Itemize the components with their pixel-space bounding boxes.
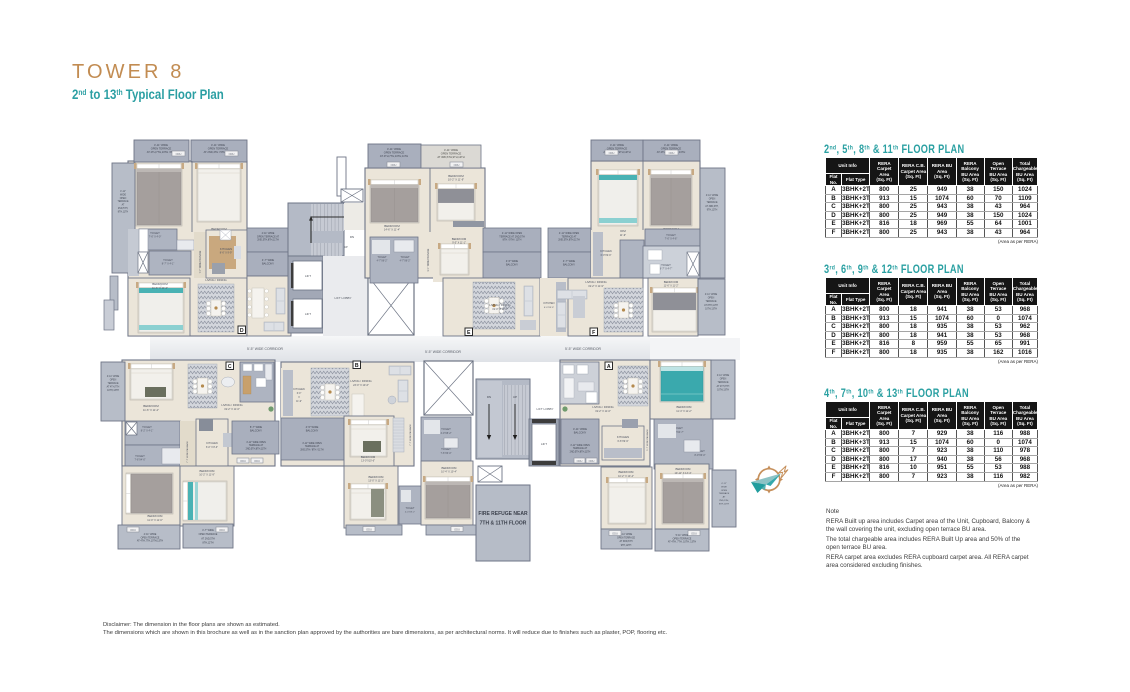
svg-text:AT 3RD,6TH: AT 3RD,6TH [620, 540, 633, 543]
svg-text:9TH,12TH: 9TH,12TH [621, 545, 632, 547]
svg-text:TOILET: TOILET [150, 231, 160, 235]
svg-text:ODU: ODU [176, 152, 182, 156]
svg-text:TERRACE: TERRACE [118, 200, 129, 203]
svg-text:TOILET: TOILET [661, 263, 671, 267]
svg-text:ODU: ODU [589, 459, 595, 463]
svg-text:KITCHEN: KITCHEN [544, 302, 555, 305]
svg-text:8TH,12TH: 8TH,12TH [202, 542, 213, 545]
svg-text:ODU: ODU [254, 459, 260, 463]
svg-text:TERRACE: TERRACE [706, 300, 717, 303]
svg-text:KITCHEN: KITCHEN [600, 249, 612, 253]
svg-text:10TH,13TH: 10TH,13TH [107, 390, 119, 392]
svg-text:14'-6" X 11'-4": 14'-6" X 11'-4" [384, 228, 400, 232]
svg-text:ODU: ODU [577, 459, 583, 463]
svg-text:4'-0"X8'-2": 4'-0"X8'-2" [405, 512, 415, 514]
svg-text:AT 3RD,6TH,9TH,12TH: AT 3RD,6TH,9TH,12TH [437, 155, 464, 159]
svg-text:F: F [592, 330, 595, 336]
svg-text:4'-11" WIDE OPEN: 4'-11" WIDE OPEN [302, 443, 322, 445]
svg-text:13'-0" X 11'-2": 13'-0" X 11'-2" [368, 480, 384, 483]
svg-text:4'-11" WIDE OPEN: 4'-11" WIDE OPEN [246, 442, 266, 444]
svg-text:4'-0"X8'-2": 4'-0"X8'-2" [440, 432, 451, 435]
svg-text:OPEN: OPEN [120, 198, 127, 200]
svg-text:10'-4" X 10'-4": 10'-4" X 10'-4" [441, 471, 457, 474]
svg-text:8'-7" X 4'-7": 8'-7" X 4'-7" [660, 268, 673, 271]
svg-text:2ND,5TH,: 2ND,5TH, [719, 500, 729, 502]
svg-text:ODU: ODU [669, 151, 675, 155]
svg-text:BEDROOM: BEDROOM [369, 475, 385, 479]
svg-text:TERRACE: TERRACE [108, 382, 119, 385]
svg-text:TERRACE AT: TERRACE AT [573, 447, 588, 450]
svg-text:ODU: ODU [219, 528, 225, 532]
svg-text:8TH,11TH: 8TH,11TH [719, 503, 729, 505]
svg-text:BALCONY: BALCONY [574, 431, 587, 435]
svg-text:11'-9": 11'-9" [296, 401, 302, 403]
svg-text:LIVING / DINING: LIVING / DINING [592, 405, 613, 409]
svg-text:BALCONY: BALCONY [506, 263, 518, 266]
svg-text:5'-5" WIDE CORRIDOR: 5'-5" WIDE CORRIDOR [247, 347, 283, 351]
svg-text:C: C [228, 364, 232, 370]
svg-text:10'-2" X 10'-4": 10'-2" X 10'-4" [618, 475, 634, 478]
svg-text:4'-7"X8'-2": 4'-7"X8'-2" [377, 261, 388, 263]
svg-text:4'-5" WIDE: 4'-5" WIDE [306, 425, 319, 429]
svg-text:BEDROOM: BEDROOM [448, 174, 464, 178]
svg-text:AT 4TH,7TH: AT 4TH,7TH [717, 385, 730, 388]
svg-text:UP: UP [344, 246, 348, 249]
svg-text:4'-11" WIDE: 4'-11" WIDE [444, 148, 458, 152]
svg-text:11'-6" X 11'-2": 11'-6" X 11'-2" [143, 408, 159, 412]
svg-text:BEDROOM: BEDROOM [384, 224, 400, 228]
svg-text:LIVING / DINING: LIVING / DINING [350, 379, 371, 383]
svg-text:TERRACE AT: TERRACE AT [249, 444, 264, 447]
svg-text:FIRE REFUGE NEAR: FIRE REFUGE NEAR [478, 511, 528, 517]
svg-text:TERRACE: TERRACE [718, 381, 729, 384]
svg-text:11'-4" X 11'-2": 11'-4" X 11'-2" [676, 410, 692, 413]
svg-text:AT 3RD,6TH,: AT 3RD,6TH, [705, 205, 719, 208]
svg-text:BALCONY: BALCONY [306, 429, 319, 433]
svg-text:ODU: ODU [130, 528, 136, 532]
svg-text:8TH,11TH: 8TH,11TH [118, 211, 129, 213]
svg-text:AT 4TH,7TH,10TH / 8TH: AT 4TH,7TH,10TH / 8TH [147, 150, 176, 154]
svg-text:7'-6"X6'-0": 7'-6"X6'-0" [440, 452, 451, 455]
svg-text:LIFT LOBBY: LIFT LOBBY [537, 407, 554, 411]
svg-text:BEDROOM: BEDROOM [143, 404, 159, 408]
svg-text:OPEN TERRACE: OPEN TERRACE [208, 147, 229, 151]
svg-text:2ND,5TH,8TH,11TH: 2ND,5TH,8TH,11TH [246, 448, 267, 450]
svg-text:2ND,5TH,: 2ND,5TH, [118, 208, 129, 210]
svg-text:BEDROOM: BEDROOM [676, 467, 692, 471]
svg-text:4'-11" WIDE: 4'-11" WIDE [107, 376, 120, 378]
svg-text:13'-0"X10'-6": 13'-0"X10'-6" [361, 460, 375, 463]
svg-text:OPEN TERRACE: OPEN TERRACE [617, 537, 636, 540]
svg-text:ODU: ODU [454, 527, 460, 531]
svg-text:2ND,5TH,8TH,11TH: 2ND,5TH,8TH,11TH [558, 239, 580, 242]
svg-text:5'-5" WIDE CORRIDOR: 5'-5" WIDE CORRIDOR [425, 350, 461, 354]
svg-text:4'-11" WIDE: 4'-11" WIDE [664, 143, 678, 147]
svg-text:LIVING / DINING: LIVING / DINING [205, 278, 226, 282]
svg-text:4'-11" WIDE: 4'-11" WIDE [620, 534, 633, 536]
svg-text:UP: UP [513, 395, 517, 399]
svg-text:10'-2" X 11'-9": 10'-2" X 11'-9" [199, 474, 215, 477]
svg-text:LIVING / DINING: LIVING / DINING [489, 303, 510, 307]
svg-text:D: D [240, 328, 244, 334]
svg-text:KITCHEN: KITCHEN [617, 435, 629, 439]
svg-text:AT 8TH,11TH: AT 8TH,11TH [704, 304, 718, 307]
svg-text:BEDROOM: BEDROOM [442, 466, 458, 470]
svg-text:19'-2" X 11'-6": 19'-2" X 11'-6" [224, 408, 240, 411]
svg-text:4'-11" WIDE: 4'-11" WIDE [211, 143, 225, 147]
svg-text:19'-2" X 11'-6": 19'-2" X 11'-6" [595, 410, 611, 413]
svg-text:TERRACE: TERRACE [707, 201, 718, 204]
svg-text:OPEN: OPEN [720, 379, 727, 381]
svg-text:2ND,5TH / 8TH / 11TH: 2ND,5TH / 8TH / 11TH [300, 449, 324, 451]
svg-text:8TH / 9TH / 11TH: 8TH / 9TH / 11TH [503, 239, 522, 242]
svg-text:LIFT LOBBY: LIFT LOBBY [335, 296, 352, 300]
svg-text:7TH & 11TH FLOOR: 7TH & 11TH FLOOR [480, 521, 527, 527]
svg-text:9TH,12TH: 9TH,12TH [707, 209, 718, 211]
svg-text:E: E [467, 330, 471, 336]
svg-text:LIFT: LIFT [305, 274, 311, 278]
svg-text:OPEN: OPEN [110, 380, 117, 382]
svg-text:8'-6" X 9'-9": 8'-6" X 9'-9" [220, 252, 233, 255]
svg-text:ODU: ODU [366, 527, 372, 531]
svg-text:AT 4TH, 7TH, 10TH, 13TH: AT 4TH, 7TH, 10TH, 13TH [668, 541, 696, 544]
svg-text:TOILET: TOILET [666, 233, 676, 237]
svg-text:WIDE: WIDE [721, 486, 727, 488]
svg-text:4'-11" WIDE: 4'-11" WIDE [154, 143, 168, 147]
svg-text:4'-11" WIDE: 4'-11" WIDE [706, 195, 719, 197]
svg-text:OPEN TERRACE: OPEN TERRACE [384, 151, 405, 155]
svg-text:AT 4TH,7TH: AT 4TH,7TH [107, 386, 120, 389]
svg-text:OPEN: OPEN [708, 298, 715, 300]
svg-text:ODU: ODU [691, 531, 697, 535]
svg-text:ODU: ODU [612, 531, 618, 535]
svg-text:BALCONY: BALCONY [250, 429, 262, 432]
svg-text:ODU: ODU [454, 163, 460, 167]
svg-text:OPEN: OPEN [709, 199, 716, 201]
svg-text:BEDROOM: BEDROOM [619, 470, 635, 474]
svg-text:BEDROOM: BEDROOM [452, 237, 467, 241]
svg-text:8'-0"X6'-0": 8'-0"X6'-0" [694, 454, 705, 457]
svg-text:9'-5" X 11'-1": 9'-5" X 11'-1" [452, 241, 466, 244]
svg-text:BEDROOM: BEDROOM [664, 280, 679, 284]
svg-text:19'-2" X 11'-9": 19'-2" X 11'-9" [588, 285, 604, 288]
svg-text:AT 4TH,7TH,10TH,13TH: AT 4TH,7TH,10TH,13TH [137, 540, 163, 543]
svg-text:4'-11" WIDE: 4'-11" WIDE [705, 294, 718, 296]
svg-text:ODU: ODU [391, 163, 397, 167]
svg-text:11'-0" X 11'-6": 11'-0" X 11'-6" [147, 519, 163, 522]
svg-text:TERRACE AT: TERRACE AT [305, 445, 320, 448]
svg-text:4'-7"X8'-2": 4'-7"X8'-2" [400, 261, 411, 263]
svg-text:19'-0" X 11'-6": 19'-0" X 11'-6" [492, 308, 508, 311]
svg-text:KITCHEN: KITCHEN [220, 247, 232, 251]
svg-text:ODU: ODU [229, 152, 235, 156]
svg-text:6'-0": 6'-0" [297, 393, 302, 395]
svg-text:TERRACE: TERRACE [719, 492, 730, 495]
svg-text:WIDE: WIDE [120, 194, 126, 196]
svg-text:TOILET: TOILET [135, 454, 145, 458]
svg-text:DN: DN [487, 395, 491, 399]
svg-text:6'-0"X9'-9": 6'-0"X9'-9" [601, 255, 612, 257]
svg-text:23'-0" X 10'-6": 23'-0" X 10'-6" [353, 384, 369, 387]
svg-text:7'-6" X 4'-0": 7'-6" X 4'-0" [149, 236, 162, 239]
svg-text:8'-7" X 4'-1": 8'-7" X 4'-1" [162, 263, 175, 266]
svg-text:ODU: ODU [240, 459, 246, 463]
svg-text:5'-7" WIDE PASSAGE: 5'-7" WIDE PASSAGE [646, 429, 649, 451]
svg-text:BEDROOM: BEDROOM [148, 514, 164, 518]
svg-text:7'-7" WIDE PASSAGE: 7'-7" WIDE PASSAGE [409, 424, 412, 446]
svg-text:OPEN TERRACE: OPEN TERRACE [441, 152, 462, 156]
svg-text:DN: DN [350, 235, 354, 239]
svg-text:11'-6" X 11'-2": 11'-6" X 11'-2" [152, 286, 168, 290]
svg-text:BALCONY: BALCONY [563, 263, 575, 266]
svg-text:2ND,5TH,8TH,11TH: 2ND,5TH,8TH,11TH [257, 239, 279, 242]
svg-text:OPEN TERRACE: OPEN TERRACE [199, 533, 218, 536]
svg-text:10TH,13TH: 10TH,13TH [705, 308, 717, 310]
svg-text:ODU: ODU [609, 151, 615, 155]
svg-text:TOILET: TOILET [142, 425, 152, 429]
svg-text:9'-1" WIDE PASSAGE: 9'-1" WIDE PASSAGE [427, 248, 430, 271]
svg-text:6'-0"X8'-6": 6'-0"X8'-6" [544, 307, 554, 309]
svg-text:11'-6" X 11'-2": 11'-6" X 11'-2" [664, 285, 679, 288]
svg-text:B: B [355, 363, 359, 369]
svg-text:AT 4TH,7TH,10TH,11TH: AT 4TH,7TH,10TH,11TH [380, 154, 408, 158]
svg-text:6'-0" X 8'-0": 6'-0" X 8'-0" [206, 447, 218, 449]
svg-text:TOILET: TOILET [377, 255, 387, 259]
svg-text:TOILET: TOILET [441, 427, 451, 431]
svg-text:4'-11" WIDE: 4'-11" WIDE [387, 147, 401, 151]
svg-text:6'-6"X9'-9": 6'-6"X9'-9" [617, 440, 628, 443]
svg-text:KITCHEN: KITCHEN [293, 387, 305, 391]
svg-text:BALCONY: BALCONY [262, 262, 274, 265]
svg-text:AT 2ND,5TH: AT 2ND,5TH [201, 537, 215, 540]
svg-text:BEDROOM: BEDROOM [200, 469, 216, 473]
svg-text:TOILET: TOILET [163, 258, 173, 262]
svg-text:10'-2" X 11'-9": 10'-2" X 11'-9" [448, 178, 464, 182]
svg-text:LIVING / DINING: LIVING / DINING [221, 403, 242, 407]
svg-text:5'-5" WIDE CORRIDOR: 5'-5" WIDE CORRIDOR [565, 347, 601, 351]
svg-text:TOILET: TOILET [405, 506, 414, 510]
svg-text:7'-6"X4'-0": 7'-6"X4'-0" [134, 459, 145, 462]
svg-text:4'-11" WIDE: 4'-11" WIDE [610, 143, 624, 147]
svg-text:OPEN: OPEN [721, 490, 728, 492]
svg-text:LIFT: LIFT [541, 442, 547, 446]
svg-text:TOILET: TOILET [400, 255, 410, 259]
svg-text:BEDROOM: BEDROOM [677, 405, 693, 409]
svg-text:10'-11" X 13'-4": 10'-11" X 13'-4" [675, 472, 692, 475]
svg-text:4'-11" WIDE: 4'-11" WIDE [717, 375, 730, 377]
svg-text:7'-7" WIDE PASSAGE: 7'-7" WIDE PASSAGE [199, 250, 202, 273]
svg-text:4'-11" WIDE: 4'-11" WIDE [573, 427, 587, 431]
svg-text:4'-7" WIDE: 4'-7" WIDE [202, 529, 214, 532]
svg-text:10TH,13TH: 10TH,13TH [717, 389, 729, 391]
svg-text:8'-2" X 4'-1": 8'-2" X 4'-1" [141, 430, 154, 433]
svg-text:LIFT: LIFT [305, 312, 311, 316]
svg-text:BEDROOM: BEDROOM [361, 455, 376, 459]
svg-text:KITCHEN: KITCHEN [206, 441, 218, 445]
svg-text:7'-6" X 4'-6": 7'-6" X 4'-6" [665, 238, 678, 241]
svg-text:LIVING / DINING: LIVING / DINING [585, 280, 606, 284]
svg-text:4'-11" WIDE OPEN: 4'-11" WIDE OPEN [570, 445, 590, 447]
svg-text:A: A [607, 364, 611, 370]
svg-text:BEDROOM: BEDROOM [152, 282, 168, 286]
svg-text:4'-11": 4'-11" [120, 191, 126, 193]
svg-text:7'-7" WIDE PASSAGE: 7'-7" WIDE PASSAGE [186, 441, 189, 463]
svg-text:4'-11": 4'-11" [721, 483, 727, 485]
svg-text:2ND,5TH,8TH,11TH: 2ND,5TH,8TH,11TH [570, 451, 591, 453]
svg-text:OPEN TERRACE: OPEN TERRACE [151, 147, 172, 151]
